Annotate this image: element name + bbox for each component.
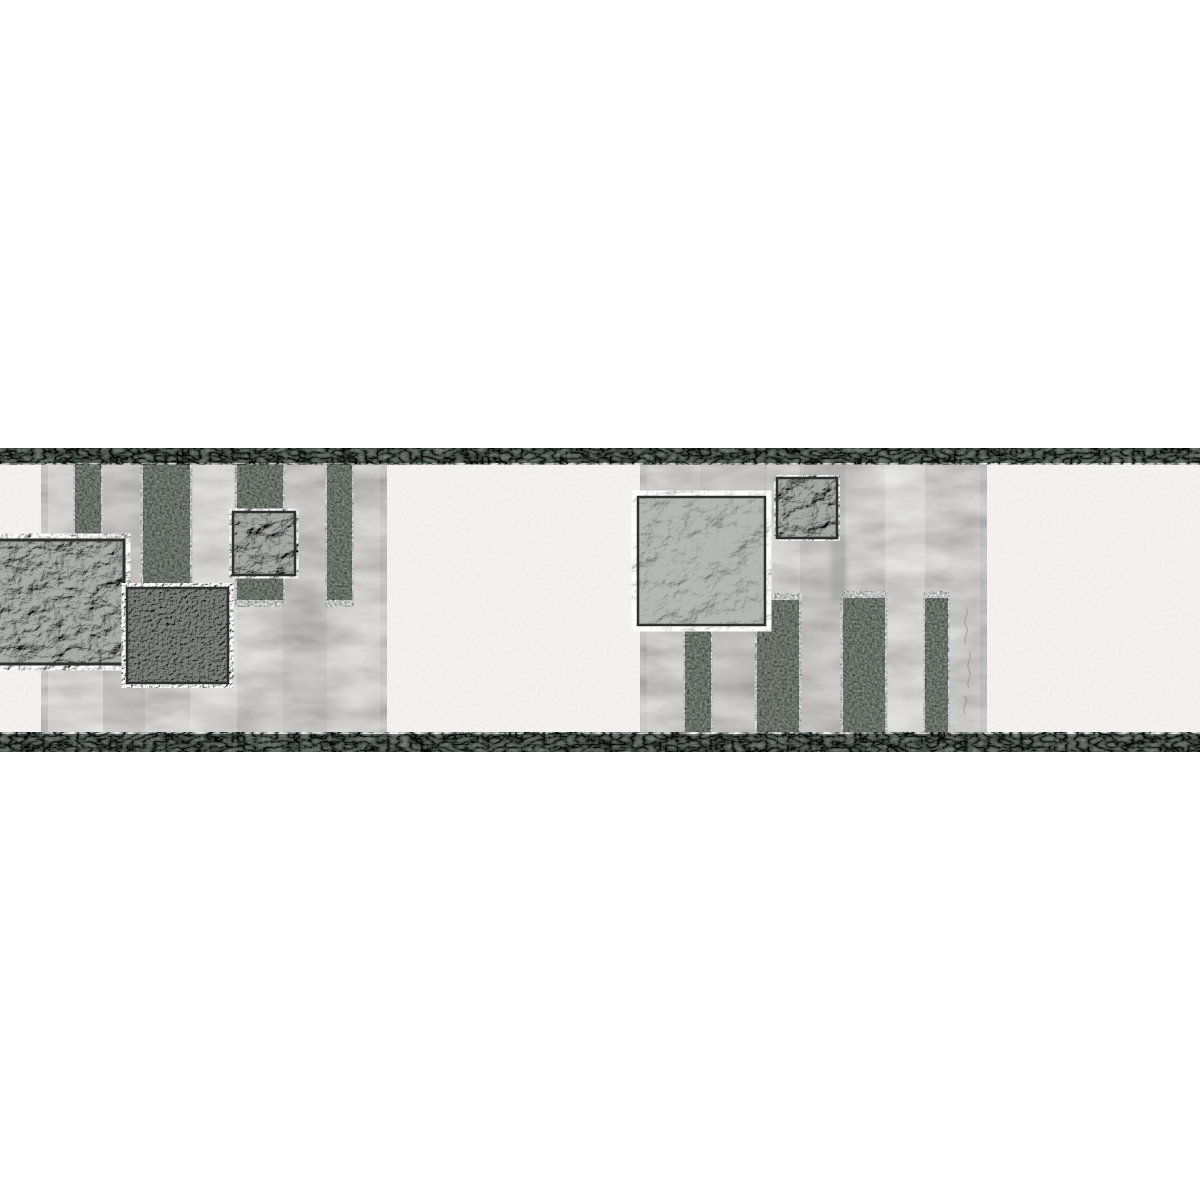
crumpled-foil-square-large — [0, 540, 124, 664]
granular-bar — [685, 625, 711, 734]
granular-bar — [925, 598, 948, 734]
granite-band-top — [0, 448, 1200, 463]
panel-column-tint — [283, 463, 327, 734]
pebbled-square — [127, 588, 228, 683]
granular-bar — [75, 463, 101, 543]
crumpled-foil-square-small — [233, 512, 295, 575]
wallpaper-border-strip — [0, 448, 1200, 752]
granular-bar — [143, 463, 190, 593]
crumpled-plaster-square — [638, 497, 765, 625]
granular-bar — [843, 598, 885, 734]
smudge-streak — [831, 536, 847, 602]
granular-bar — [327, 463, 352, 600]
product-photo-canvas — [0, 0, 1200, 1200]
granite-band-bottom — [0, 734, 1200, 752]
crumpled-foil-square-top — [777, 478, 837, 538]
panel-column-tint — [885, 463, 925, 734]
